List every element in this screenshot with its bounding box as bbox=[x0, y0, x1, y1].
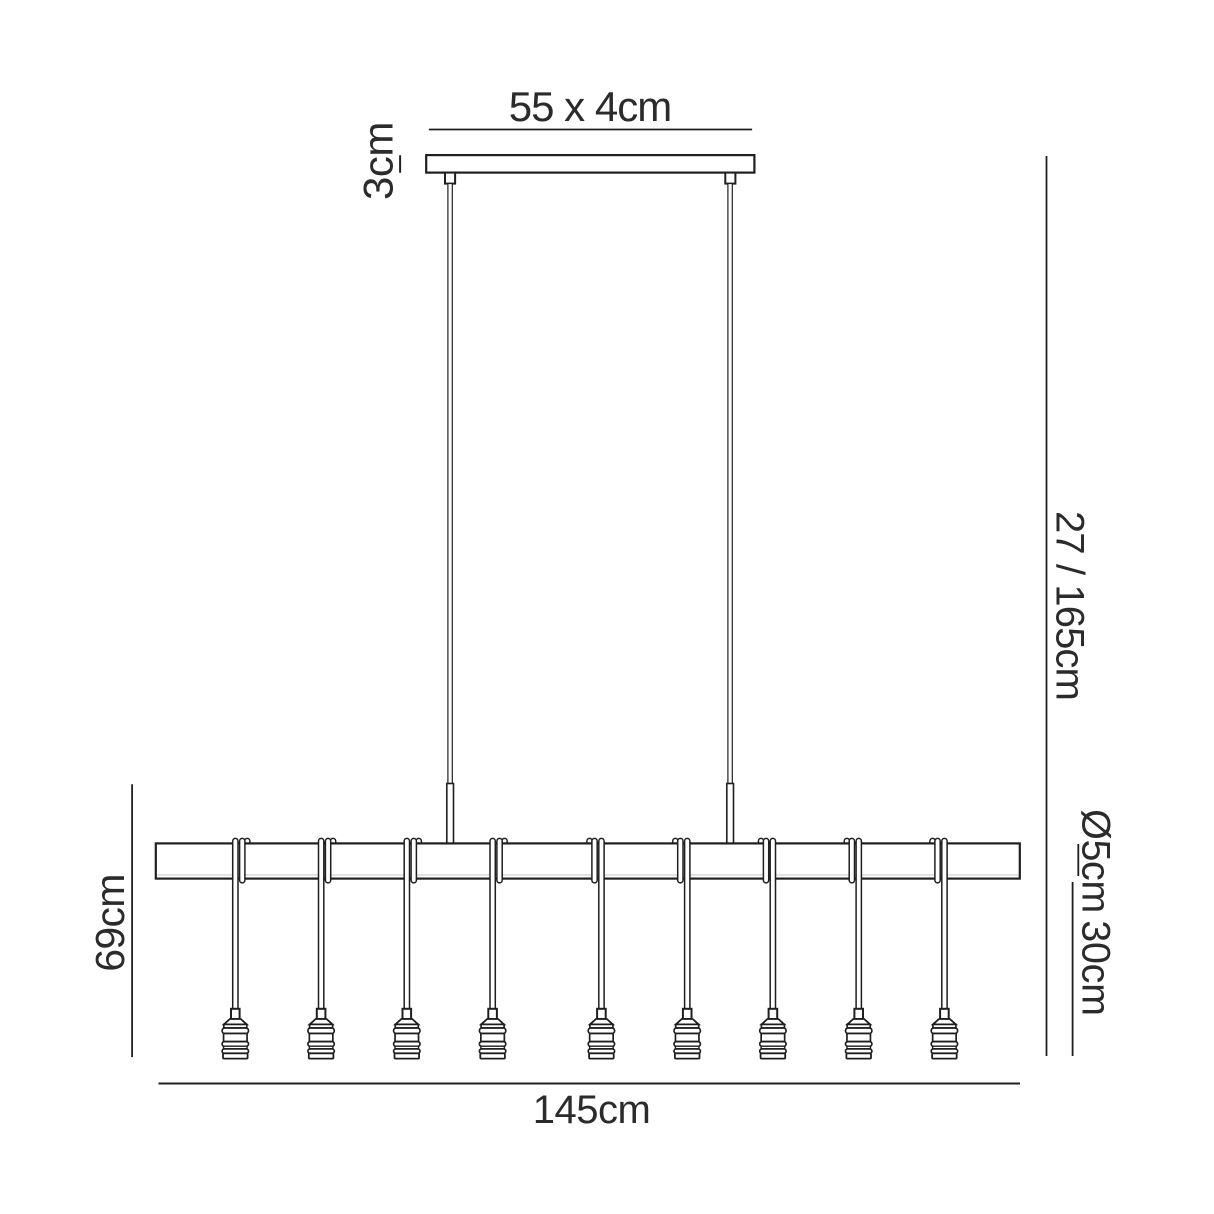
svg-text:145cm: 145cm bbox=[533, 1088, 651, 1132]
svg-text:69cm: 69cm bbox=[87, 874, 133, 971]
svg-text:3cm: 3cm bbox=[355, 122, 402, 200]
svg-text:Ø5cm: Ø5cm bbox=[1074, 809, 1118, 913]
svg-text:30cm: 30cm bbox=[1074, 920, 1118, 1015]
svg-text:27 / 165cm: 27 / 165cm bbox=[1048, 511, 1092, 700]
svg-text:55 x 4cm: 55 x 4cm bbox=[509, 83, 671, 130]
